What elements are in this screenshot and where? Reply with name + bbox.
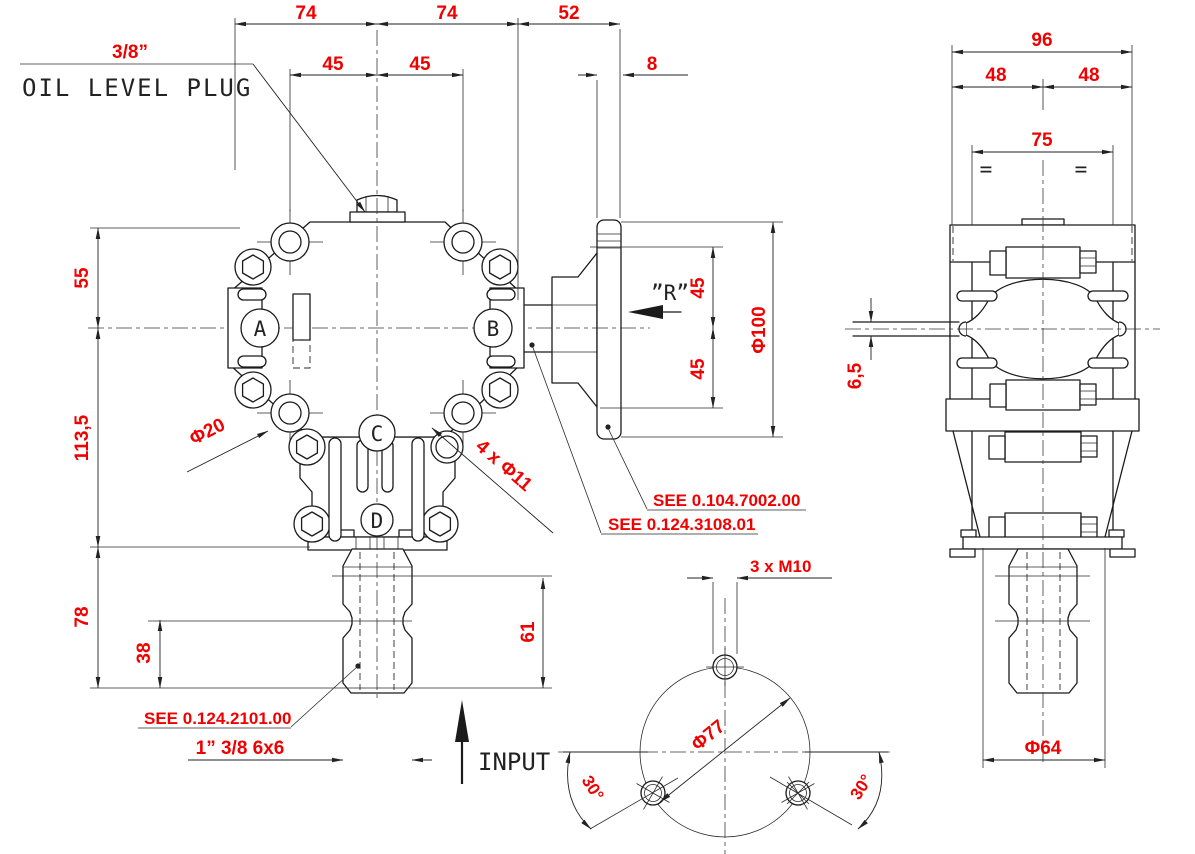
input-label: INPUT <box>478 748 550 776</box>
dim-8: 8 <box>647 54 658 75</box>
equal-mark-left: = <box>980 157 993 181</box>
dim-74-left: 74 <box>295 3 317 24</box>
phi11-hole <box>431 431 463 463</box>
dim-spline-spec: 1” 3/8 6x6 <box>196 738 285 759</box>
port-d-label: D <box>371 509 384 533</box>
rib-slot <box>329 438 341 541</box>
dim-6-5: 6,5 <box>845 362 866 389</box>
slot <box>1088 291 1128 301</box>
hex-bolt <box>235 249 271 285</box>
bolt-circle-view: 3 x M10 Φ77 30° 30° <box>558 557 892 854</box>
dim-bolts: 3 x M10 <box>750 557 811 576</box>
hex-bolt <box>422 506 458 542</box>
rib-slot <box>412 438 424 541</box>
dim-75: 75 <box>1031 130 1053 151</box>
hex-bolt <box>294 506 330 542</box>
dim-96: 96 <box>1031 30 1052 51</box>
slot <box>1088 358 1128 368</box>
dim-bolt-circle-diameter: Φ77 <box>688 716 730 755</box>
dim-angle-right: 30° <box>846 771 876 803</box>
input-arrow-icon <box>455 700 469 784</box>
dim-45-right: 45 <box>409 54 431 75</box>
oil-level-plug <box>350 196 405 223</box>
port-c-label: C <box>371 422 384 446</box>
rotation-direction-label: ”R” <box>651 281 689 305</box>
dim-74-right: 74 <box>436 3 458 24</box>
equal-mark-right: = <box>1075 157 1088 181</box>
dim-mount-holes: 4 x Φ11 <box>471 436 536 496</box>
hex-bolt <box>482 372 518 408</box>
dim-78: 78 <box>72 606 93 627</box>
dim-45-left: 45 <box>322 54 344 75</box>
dim-55: 55 <box>72 267 93 289</box>
port-a-label: A <box>254 317 267 341</box>
technical-drawing-sheet: A B C D 74 74 52 45 45 8 55 113,5 78 38 … <box>0 0 1195 854</box>
hex-bolt <box>289 429 325 465</box>
hex-bolt <box>235 372 271 408</box>
ref-flange: SEE 0.104.7002.00 <box>653 491 800 510</box>
gearbox-drawing: A B C D 74 74 52 45 45 8 55 113,5 78 38 … <box>0 0 1195 854</box>
ref-input-shaft: SEE 0.124.2101.00 <box>144 709 291 728</box>
dim-61: 61 <box>518 621 539 643</box>
port-b-label: B <box>487 317 500 341</box>
dim-angle-left: 30° <box>578 772 608 804</box>
oil-plug-size: 3/8” <box>112 42 148 63</box>
front-view: A B C D <box>88 30 650 700</box>
dim-shaft-boss-diameter: Φ64 <box>1025 738 1062 759</box>
m10-hole <box>706 648 744 686</box>
dim-48-left: 48 <box>985 65 1006 86</box>
slot <box>957 291 997 301</box>
ref-bearing: SEE 0.124.3108.01 <box>608 515 755 534</box>
dim-flange-45-upper: 45 <box>688 277 709 299</box>
side-view: 96 48 48 75 = = 6,5 Φ64 <box>845 30 1160 768</box>
rotation-arrow-icon <box>628 305 681 319</box>
dim-52: 52 <box>558 3 579 24</box>
output-flange-plate <box>597 220 621 439</box>
dim-113-5: 113,5 <box>72 414 93 461</box>
sight-window <box>293 294 310 340</box>
dim-48-right: 48 <box>1078 65 1099 86</box>
dim-38: 38 <box>134 642 155 663</box>
hex-bolt <box>482 249 518 285</box>
dim-flange-45-lower: 45 <box>688 358 709 380</box>
slot <box>957 358 997 368</box>
oil-plug-label: OIL LEVEL PLUG <box>22 74 252 102</box>
output-hub <box>524 253 597 407</box>
dim-flange-diameter: Φ100 <box>749 306 770 353</box>
dim-boss-diameter: Φ20 <box>186 414 228 449</box>
